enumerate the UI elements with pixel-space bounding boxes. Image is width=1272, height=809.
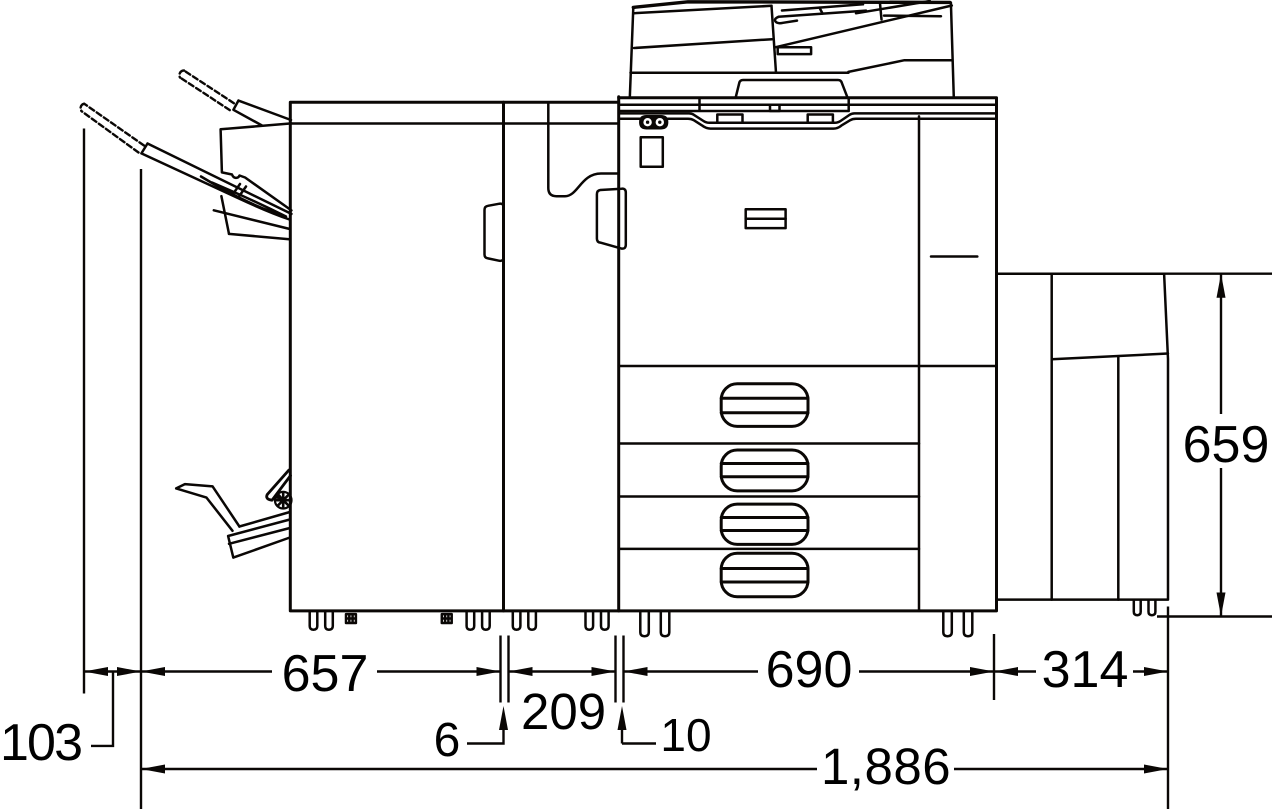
svg-text:659: 659 <box>1183 416 1270 474</box>
svg-text:6: 6 <box>434 714 461 767</box>
svg-text:1,886: 1,886 <box>821 738 951 795</box>
svg-text:10: 10 <box>660 709 711 761</box>
svg-text:209: 209 <box>521 683 606 740</box>
svg-text:314: 314 <box>1042 641 1129 699</box>
svg-text:103: 103 <box>0 714 83 772</box>
svg-text:657: 657 <box>282 645 369 703</box>
svg-text:690: 690 <box>766 641 853 699</box>
